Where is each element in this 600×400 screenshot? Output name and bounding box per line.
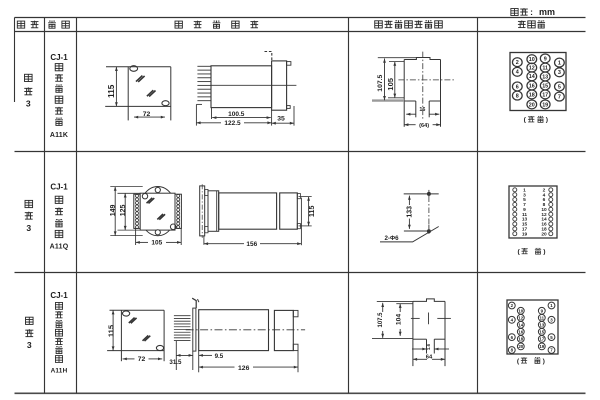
svg-text:115: 115 xyxy=(309,206,316,217)
svg-text:105: 105 xyxy=(386,77,395,90)
svg-text:9: 9 xyxy=(544,56,547,62)
svg-text:CJ-1: CJ-1 xyxy=(50,291,68,300)
svg-text:2: 2 xyxy=(516,60,519,66)
svg-text:126: 126 xyxy=(238,365,250,372)
svg-text:18: 18 xyxy=(529,92,535,98)
svg-text:10: 10 xyxy=(529,57,535,63)
svg-text:mm: mm xyxy=(539,7,555,17)
svg-text:13: 13 xyxy=(539,323,544,328)
svg-text:11: 11 xyxy=(539,316,544,321)
svg-text:100.5: 100.5 xyxy=(228,111,245,118)
svg-text::: : xyxy=(530,7,533,17)
svg-text:3: 3 xyxy=(27,340,32,350)
svg-text:1: 1 xyxy=(558,61,561,67)
svg-text:17: 17 xyxy=(539,337,544,342)
svg-text:5: 5 xyxy=(558,84,561,90)
svg-text:17: 17 xyxy=(542,92,548,98)
svg-text:10: 10 xyxy=(518,309,523,314)
svg-text:13: 13 xyxy=(542,74,548,80)
svg-text:CJ-1: CJ-1 xyxy=(50,183,68,192)
svg-text:1.6: 1.6 xyxy=(426,343,431,350)
svg-text:107.5: 107.5 xyxy=(378,312,384,328)
svg-text:19: 19 xyxy=(522,231,528,237)
svg-text:A11H: A11H xyxy=(51,368,68,375)
svg-text:18: 18 xyxy=(518,337,523,342)
svg-text:20: 20 xyxy=(518,344,523,349)
svg-text:72: 72 xyxy=(143,111,151,118)
svg-text:3: 3 xyxy=(26,223,31,233)
svg-text:19: 19 xyxy=(539,344,544,349)
svg-text:105: 105 xyxy=(151,239,162,246)
svg-text:72: 72 xyxy=(138,356,146,363)
svg-text:115: 115 xyxy=(106,324,115,337)
svg-text:): ) xyxy=(543,249,545,256)
svg-text:16: 16 xyxy=(419,107,425,113)
svg-text:19: 19 xyxy=(542,102,548,108)
svg-text:104: 104 xyxy=(396,314,403,326)
svg-text:14: 14 xyxy=(529,74,535,80)
svg-text:15: 15 xyxy=(542,83,548,89)
svg-text:(64): (64) xyxy=(419,123,429,129)
svg-text:125: 125 xyxy=(120,204,127,216)
svg-text:8: 8 xyxy=(516,94,519,100)
svg-text:122.5: 122.5 xyxy=(224,120,241,127)
svg-text:): ) xyxy=(546,117,548,124)
svg-text:3: 3 xyxy=(558,70,561,76)
svg-text:2-Φ6: 2-Φ6 xyxy=(384,235,399,242)
svg-text:11: 11 xyxy=(542,66,548,72)
svg-text:20: 20 xyxy=(529,102,535,108)
svg-text:7: 7 xyxy=(558,95,561,101)
svg-text:4: 4 xyxy=(516,70,519,76)
svg-text:31.5: 31.5 xyxy=(169,359,182,366)
svg-text:133: 133 xyxy=(406,206,413,218)
svg-text:64: 64 xyxy=(426,354,433,360)
svg-text:A11Q: A11Q xyxy=(50,243,69,250)
svg-text:35: 35 xyxy=(277,116,285,123)
svg-text:A11K: A11K xyxy=(50,132,68,139)
svg-text:16: 16 xyxy=(518,330,523,335)
svg-text:20: 20 xyxy=(541,231,547,237)
svg-text:12: 12 xyxy=(518,316,523,321)
svg-text:14: 14 xyxy=(518,323,523,328)
svg-text:6: 6 xyxy=(516,84,519,90)
svg-text:CJ-1: CJ-1 xyxy=(50,53,68,62)
svg-text:9.5: 9.5 xyxy=(215,353,224,360)
svg-text:15: 15 xyxy=(539,330,544,335)
svg-text:107.5: 107.5 xyxy=(377,74,384,91)
svg-text:156: 156 xyxy=(246,241,257,248)
svg-text:12: 12 xyxy=(529,66,535,72)
svg-text:149: 149 xyxy=(110,204,117,216)
svg-text:): ) xyxy=(543,358,545,365)
svg-text:3: 3 xyxy=(26,99,31,109)
svg-text:16: 16 xyxy=(529,83,535,89)
svg-text:115: 115 xyxy=(107,84,116,98)
